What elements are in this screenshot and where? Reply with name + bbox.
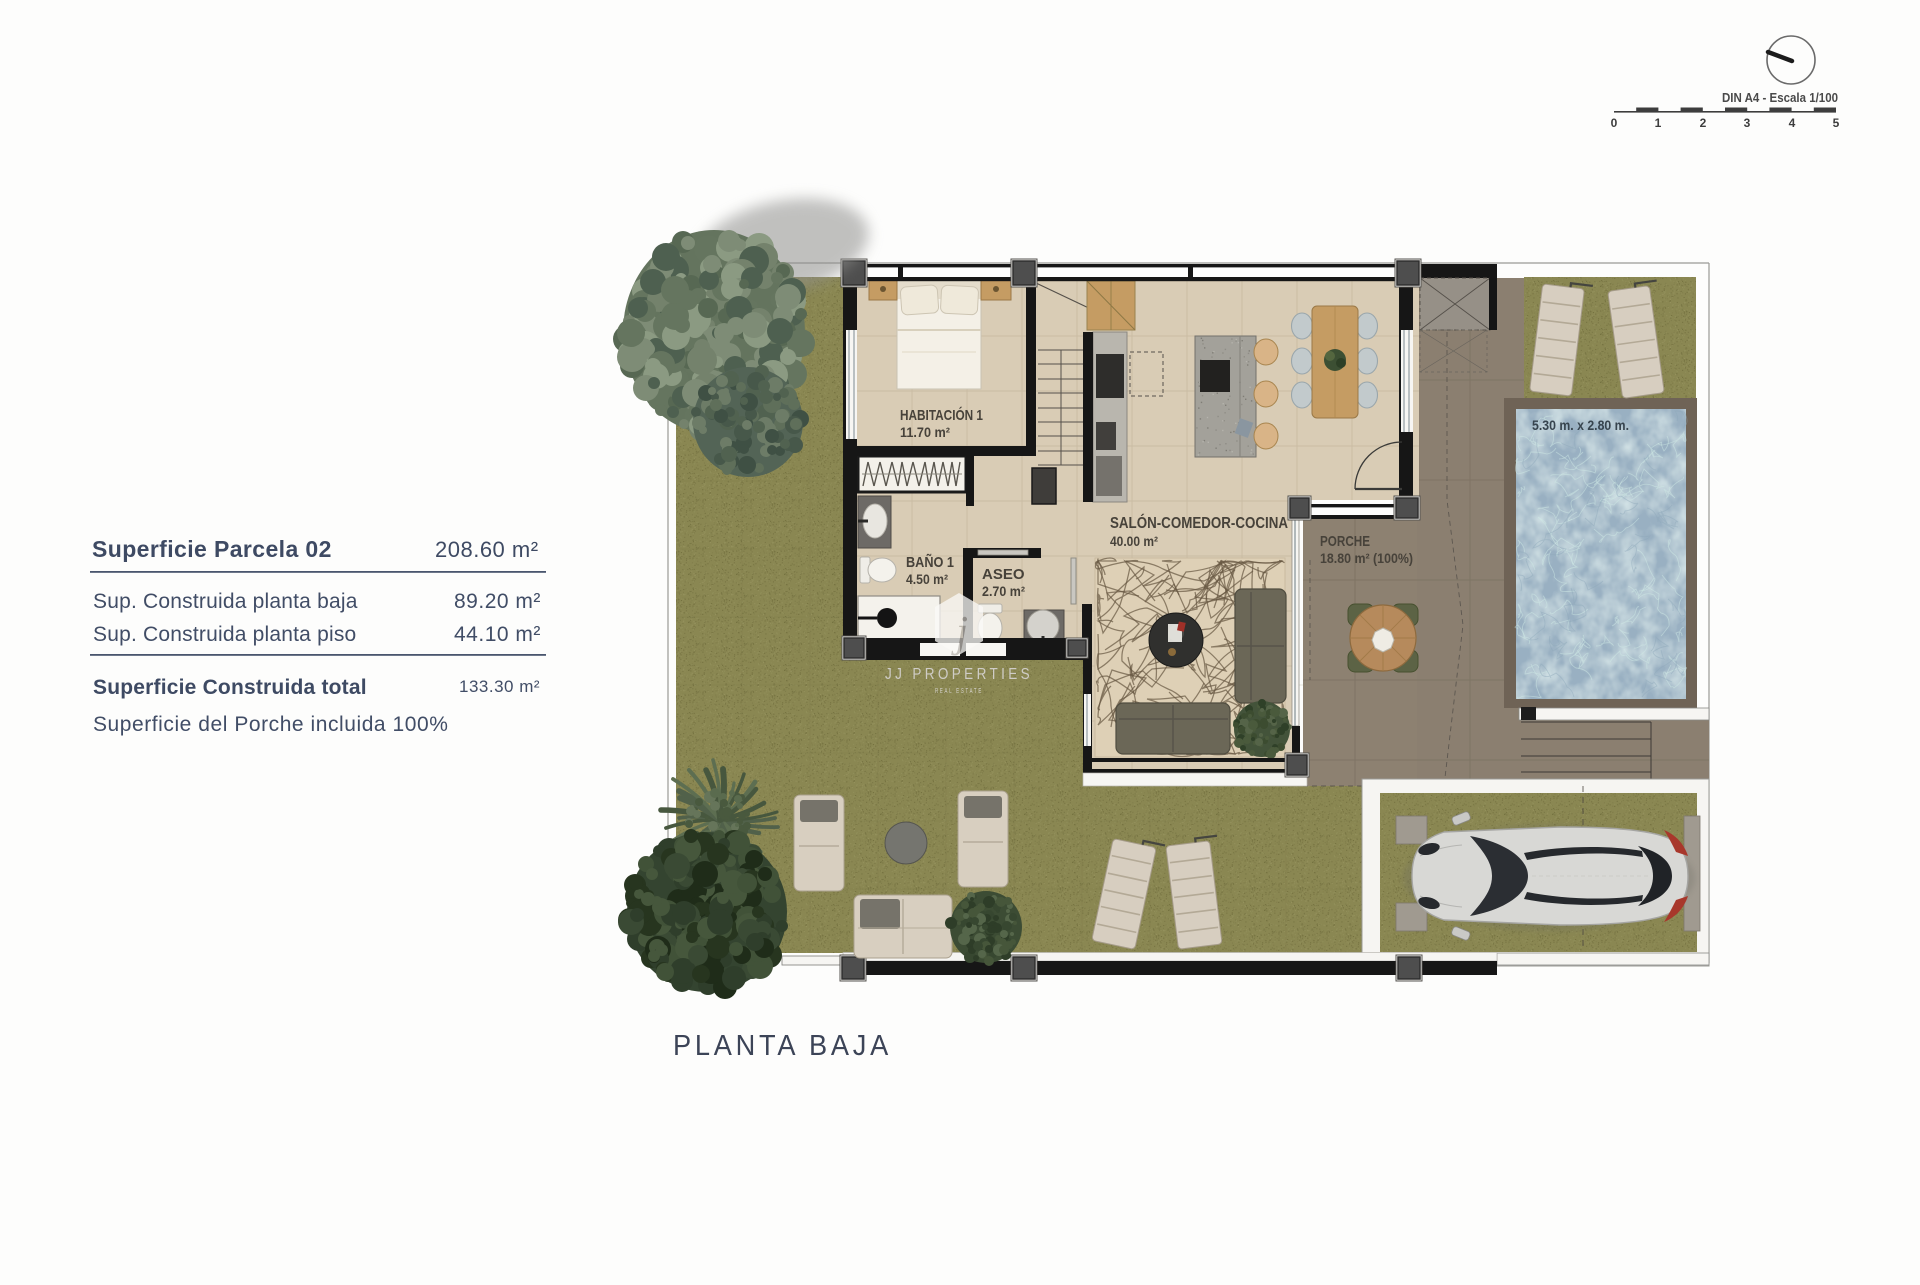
svg-text:40.00 m²: 40.00 m² — [1110, 533, 1158, 549]
svg-text:89.20 m²: 89.20 m² — [454, 590, 541, 613]
svg-text:PORCHE: PORCHE — [1320, 533, 1370, 550]
svg-text:133.30 m²: 133.30 m² — [459, 677, 540, 696]
svg-text:Sup. Construida planta piso: Sup. Construida planta piso — [93, 623, 356, 646]
svg-text:ASEO: ASEO — [982, 566, 1025, 583]
svg-text:4: 4 — [1789, 116, 1796, 130]
svg-text:18.80 m² (100%): 18.80 m² (100%) — [1320, 550, 1413, 566]
svg-text:PLANTA BAJA: PLANTA BAJA — [673, 1030, 892, 1062]
svg-text:208.60 m²: 208.60 m² — [435, 537, 539, 562]
svg-text:Sup. Construida planta baja: Sup. Construida planta baja — [93, 590, 358, 613]
svg-text:SALÓN-COMEDOR-COCINA: SALÓN-COMEDOR-COCINA — [1110, 514, 1288, 532]
svg-text:4.50 m²: 4.50 m² — [906, 571, 948, 587]
svg-text:Superficie Parcela 02: Superficie Parcela 02 — [92, 536, 332, 562]
svg-text:2.70 m²: 2.70 m² — [982, 583, 1025, 599]
svg-text:5.30 m. x 2.80 m.: 5.30 m. x 2.80 m. — [1532, 418, 1629, 433]
svg-text:0: 0 — [1611, 116, 1618, 130]
svg-text:DIN A4 - Escala 1/100: DIN A4 - Escala 1/100 — [1722, 90, 1838, 105]
svg-text:2: 2 — [1700, 116, 1707, 130]
svg-text:REAL ESTATE: REAL ESTATE — [935, 686, 983, 695]
svg-text:JJ PROPERTIES: JJ PROPERTIES — [885, 666, 1033, 683]
svg-text:Superficie Construida total: Superficie Construida total — [93, 676, 367, 699]
svg-text:HABITACIÓN 1: HABITACIÓN 1 — [900, 406, 983, 424]
svg-text:11.70 m²: 11.70 m² — [900, 424, 950, 440]
svg-text:1: 1 — [1655, 116, 1662, 130]
svg-text:3: 3 — [1744, 116, 1751, 130]
svg-text:44.10 m²: 44.10 m² — [454, 623, 541, 646]
svg-text:5: 5 — [1833, 116, 1840, 130]
svg-text:Superficie del Porche incluida: Superficie del Porche incluida 100% — [93, 713, 448, 736]
svg-text:BAÑO 1: BAÑO 1 — [906, 553, 954, 571]
